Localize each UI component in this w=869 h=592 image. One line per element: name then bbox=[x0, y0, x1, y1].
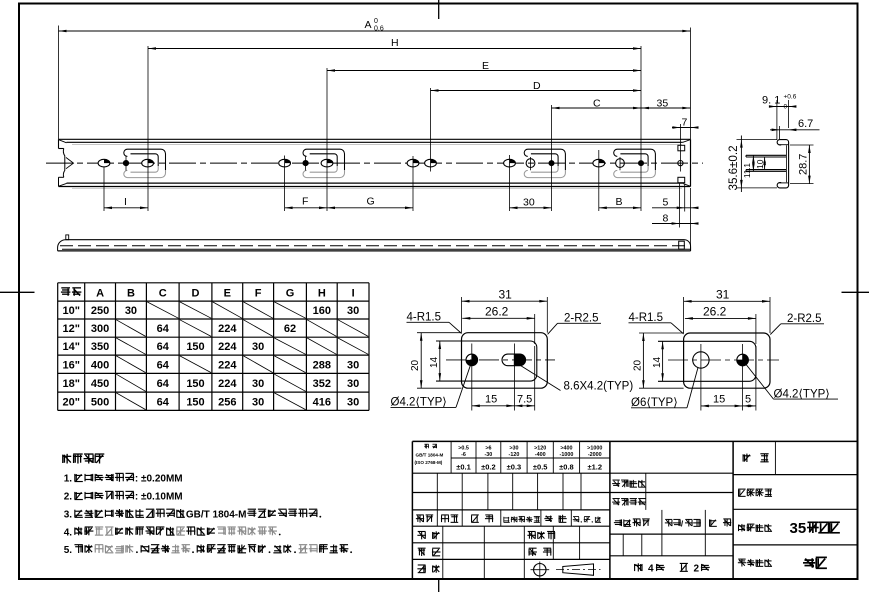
svg-text:0.6: 0.6 bbox=[374, 26, 384, 33]
svg-text:2.: 2. bbox=[64, 492, 73, 503]
svg-text:2-R2.5: 2-R2.5 bbox=[564, 313, 599, 325]
svg-text:I: I bbox=[352, 288, 355, 300]
svg-text:30: 30 bbox=[347, 359, 359, 371]
svg-text:H: H bbox=[318, 288, 326, 300]
svg-text:±0.1: ±0.1 bbox=[456, 463, 471, 472]
svg-text:±0.5: ±0.5 bbox=[533, 463, 548, 472]
svg-text:62: 62 bbox=[284, 323, 296, 335]
svg-text:B: B bbox=[127, 288, 135, 300]
svg-text:3.: 3. bbox=[64, 510, 73, 521]
svg-text:-400: -400 bbox=[535, 452, 546, 458]
svg-text:14: 14 bbox=[652, 356, 663, 368]
svg-text:7.5: 7.5 bbox=[517, 394, 532, 406]
svg-text:D: D bbox=[192, 288, 200, 300]
svg-text:64: 64 bbox=[157, 323, 170, 335]
svg-text:35: 35 bbox=[790, 520, 807, 537]
svg-text:F: F bbox=[302, 196, 308, 208]
svg-text:>30: >30 bbox=[509, 446, 518, 452]
svg-text:C: C bbox=[593, 97, 601, 109]
svg-text:224: 224 bbox=[218, 341, 237, 353]
svg-text:35: 35 bbox=[657, 97, 669, 109]
svg-text:30: 30 bbox=[523, 196, 535, 208]
svg-text:224: 224 bbox=[218, 378, 237, 390]
svg-text:256: 256 bbox=[218, 396, 236, 408]
svg-text:26.2: 26.2 bbox=[703, 305, 727, 319]
svg-text:-1000: -1000 bbox=[560, 452, 574, 458]
svg-text:>120: >120 bbox=[534, 446, 546, 452]
svg-text:2: 2 bbox=[694, 564, 700, 575]
svg-text:14: 14 bbox=[429, 356, 440, 368]
svg-text:16": 16" bbox=[62, 359, 79, 371]
svg-text:8: 8 bbox=[663, 212, 669, 224]
svg-text:±0.3: ±0.3 bbox=[507, 463, 522, 472]
svg-text:E: E bbox=[224, 288, 231, 300]
svg-text:E: E bbox=[482, 60, 489, 72]
svg-text:5: 5 bbox=[663, 196, 669, 208]
svg-text:A: A bbox=[96, 288, 104, 300]
svg-text:4: 4 bbox=[648, 564, 654, 575]
svg-text:150: 150 bbox=[186, 341, 204, 353]
svg-text:4-R1.5: 4-R1.5 bbox=[407, 312, 442, 324]
svg-text:0: 0 bbox=[784, 104, 788, 111]
svg-text:224: 224 bbox=[218, 323, 237, 335]
svg-text:>0.5: >0.5 bbox=[458, 446, 469, 452]
svg-text:H: H bbox=[391, 37, 399, 49]
svg-text:±0.8: ±0.8 bbox=[559, 463, 574, 472]
svg-text:F: F bbox=[255, 288, 262, 300]
svg-text:9. 1: 9. 1 bbox=[762, 95, 780, 107]
svg-text:>1000: >1000 bbox=[587, 446, 602, 452]
svg-text:: ±0.10MM: : ±0.10MM bbox=[135, 492, 183, 503]
svg-text:30: 30 bbox=[125, 305, 137, 317]
svg-text:64: 64 bbox=[157, 359, 170, 371]
svg-text:10": 10" bbox=[62, 305, 79, 317]
svg-text:416: 416 bbox=[313, 396, 331, 408]
svg-text:30: 30 bbox=[252, 396, 264, 408]
svg-text:±0.2: ±0.2 bbox=[481, 463, 496, 472]
svg-text:250: 250 bbox=[91, 305, 109, 317]
svg-text:+0.6: +0.6 bbox=[784, 94, 797, 101]
svg-text:31: 31 bbox=[499, 288, 513, 302]
svg-text:150: 150 bbox=[186, 396, 204, 408]
svg-text:GB/T 1804-M: GB/T 1804-M bbox=[416, 453, 444, 458]
svg-text:±1.2: ±1.2 bbox=[587, 463, 602, 472]
svg-text:12": 12" bbox=[62, 323, 79, 335]
svg-text:352: 352 bbox=[313, 378, 331, 390]
svg-text:5.: 5. bbox=[64, 545, 73, 556]
svg-text:11.1: 11.1 bbox=[743, 162, 752, 178]
svg-text:18": 18" bbox=[62, 378, 79, 390]
svg-text:Ø6⟨TYP⟩: Ø6⟨TYP⟩ bbox=[631, 396, 678, 409]
svg-text:15: 15 bbox=[485, 394, 497, 406]
svg-text:D: D bbox=[533, 80, 541, 92]
svg-text:1.: 1. bbox=[64, 474, 73, 485]
svg-text:26.2: 26.2 bbox=[485, 305, 509, 319]
svg-text:450: 450 bbox=[91, 378, 109, 390]
svg-text:0: 0 bbox=[374, 18, 378, 25]
svg-text:6.7: 6.7 bbox=[798, 118, 813, 130]
svg-text:15: 15 bbox=[713, 394, 725, 406]
svg-text:30: 30 bbox=[347, 396, 359, 408]
svg-text:GB/T 1804-M: GB/T 1804-M bbox=[186, 510, 247, 521]
svg-text:Ø4.2⟨TYP⟩: Ø4.2⟨TYP⟩ bbox=[391, 396, 447, 409]
svg-text:(ISO 2768-M): (ISO 2768-M) bbox=[415, 460, 443, 465]
svg-text:14": 14" bbox=[62, 341, 79, 353]
svg-text:A: A bbox=[365, 19, 372, 31]
svg-text:288: 288 bbox=[313, 359, 331, 371]
svg-text:2-R2.5: 2-R2.5 bbox=[787, 313, 822, 325]
svg-text:B: B bbox=[616, 196, 623, 208]
svg-text:30: 30 bbox=[252, 378, 264, 390]
svg-text:G: G bbox=[367, 196, 375, 208]
svg-text:4.: 4. bbox=[64, 527, 73, 538]
svg-text:224: 224 bbox=[218, 359, 237, 371]
svg-text:350: 350 bbox=[91, 341, 109, 353]
svg-text:28.7: 28.7 bbox=[798, 154, 810, 175]
svg-text:20: 20 bbox=[410, 359, 421, 371]
svg-text:300: 300 bbox=[91, 323, 109, 335]
svg-text:>6: >6 bbox=[485, 446, 491, 452]
svg-text:500: 500 bbox=[91, 396, 109, 408]
svg-text:G: G bbox=[286, 288, 295, 300]
svg-text:35.6±0.2: 35.6±0.2 bbox=[727, 145, 740, 190]
svg-text:30: 30 bbox=[347, 378, 359, 390]
svg-text:8.6X4.2(TYP): 8.6X4.2(TYP) bbox=[564, 380, 634, 392]
svg-text:-30: -30 bbox=[485, 452, 493, 458]
svg-text:20": 20" bbox=[62, 396, 79, 408]
svg-text:64: 64 bbox=[157, 396, 170, 408]
svg-text:150: 150 bbox=[186, 378, 204, 390]
svg-text:400: 400 bbox=[91, 359, 109, 371]
svg-text:7: 7 bbox=[682, 117, 688, 129]
svg-text:I: I bbox=[124, 196, 127, 208]
svg-text:64: 64 bbox=[157, 378, 170, 390]
svg-text:: ±0.20MM: : ±0.20MM bbox=[135, 474, 183, 485]
svg-text:4-R1.5: 4-R1.5 bbox=[629, 312, 664, 324]
svg-text:20: 20 bbox=[633, 359, 644, 371]
svg-text:-6: -6 bbox=[461, 452, 466, 458]
svg-text:-2000: -2000 bbox=[588, 452, 602, 458]
svg-text:C: C bbox=[159, 288, 167, 300]
svg-text:30: 30 bbox=[347, 305, 359, 317]
svg-text:>400: >400 bbox=[560, 446, 572, 452]
svg-text:Ø4.2⟨TYP⟩: Ø4.2⟨TYP⟩ bbox=[774, 387, 830, 400]
svg-text:-120: -120 bbox=[509, 452, 520, 458]
svg-text:64: 64 bbox=[157, 341, 170, 353]
svg-text:31: 31 bbox=[716, 288, 730, 302]
svg-text:5: 5 bbox=[745, 394, 751, 406]
svg-text:30: 30 bbox=[252, 341, 264, 353]
svg-text:160: 160 bbox=[313, 305, 331, 317]
svg-text:10: 10 bbox=[755, 159, 765, 169]
